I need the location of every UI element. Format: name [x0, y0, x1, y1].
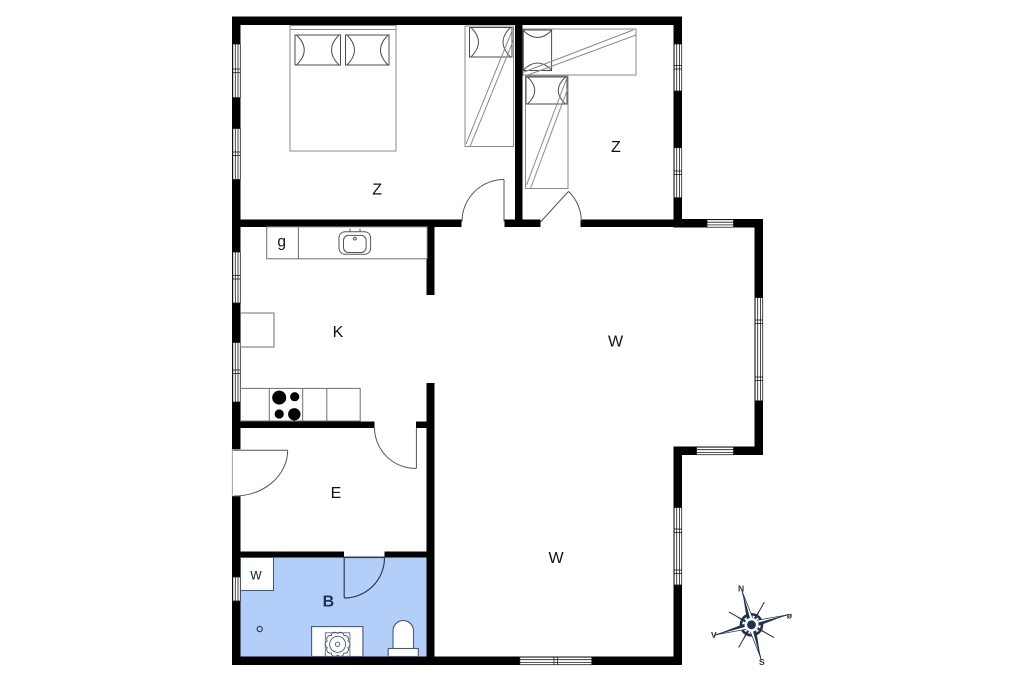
svg-text:B: B	[323, 593, 335, 610]
svg-text:K: K	[333, 324, 344, 341]
svg-text:Z: Z	[611, 139, 621, 156]
svg-text:Z: Z	[372, 182, 382, 199]
svg-text:W: W	[548, 550, 564, 567]
svg-text:w: w	[249, 567, 262, 584]
svg-text:ø: ø	[787, 610, 793, 620]
svg-text:g: g	[277, 234, 286, 251]
svg-text:W: W	[608, 334, 624, 351]
svg-text:S: S	[759, 657, 765, 667]
svg-text:N: N	[738, 583, 744, 593]
svg-text:E: E	[331, 485, 342, 502]
svg-text:V: V	[711, 630, 717, 640]
